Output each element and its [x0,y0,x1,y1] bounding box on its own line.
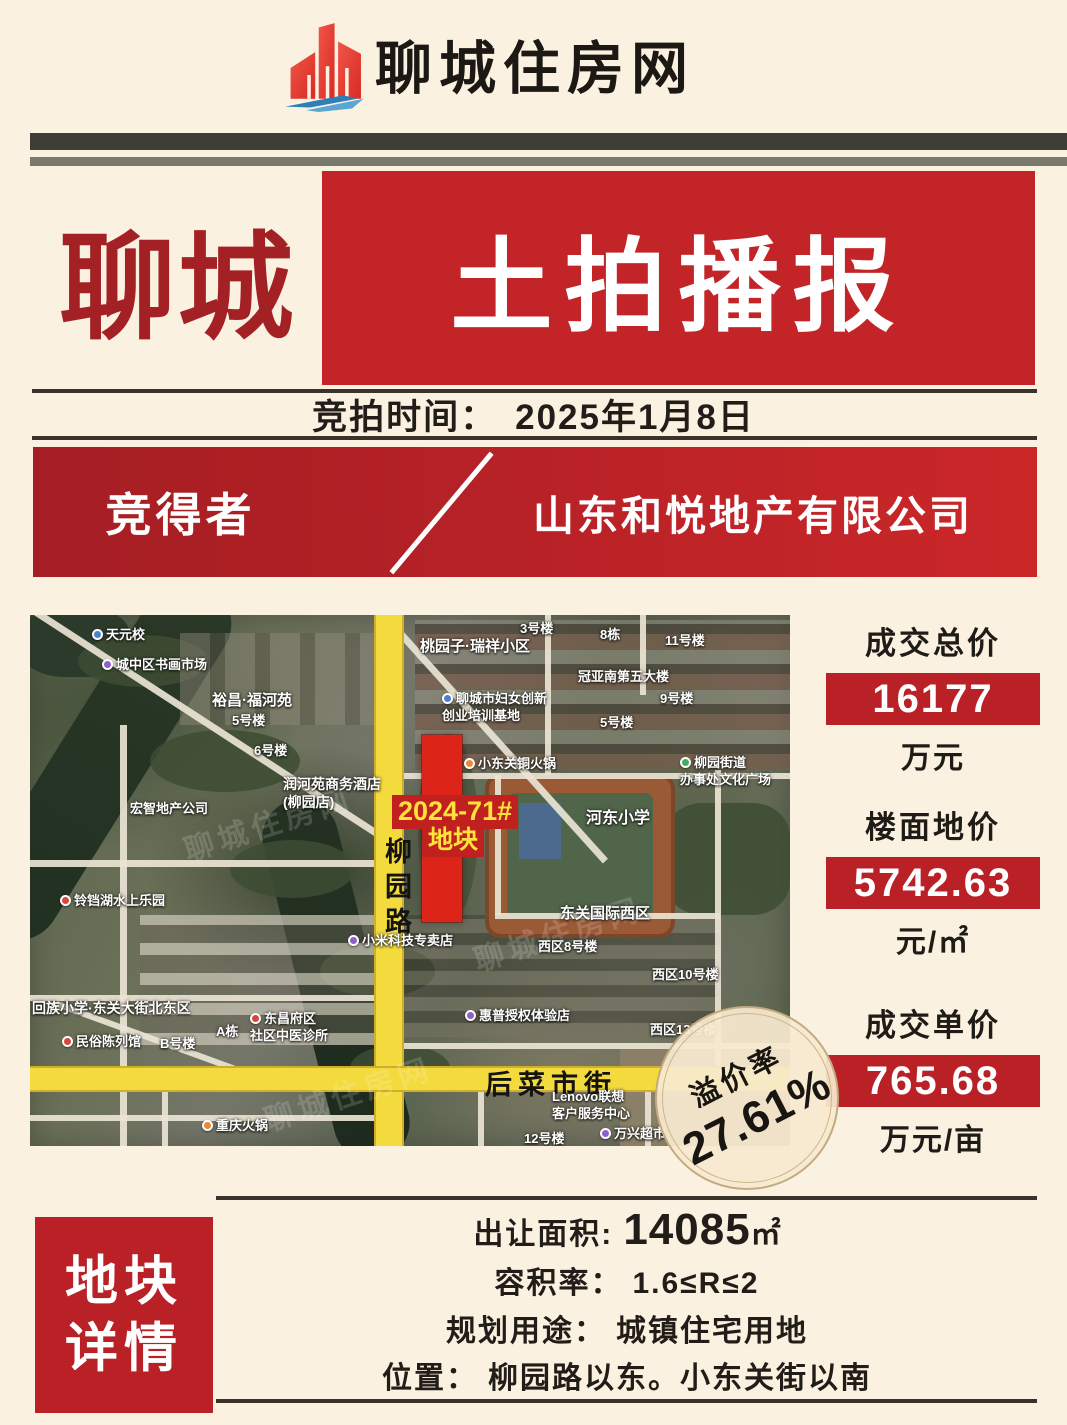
stat-unit: 万元 [826,733,1040,777]
map-pin-icon [62,1036,73,1047]
map-poi-text: A栋 [216,1024,238,1039]
map-poi-label: 9号楼 [660,691,693,708]
map-poi-label: 河东小学 [586,809,650,830]
road-name-vertical: 柳园路 [377,837,416,942]
title-banner: 土拍播报 [322,171,1035,385]
stat-label: 成交总价 [826,618,1040,663]
map-poi-text: 西区10号楼 [652,967,718,982]
map-poi-text: 小米科技专卖店 [362,933,453,948]
map-poi-label: 西区8号楼 [538,939,597,956]
rule-line [216,1196,1037,1200]
city-title: 聊城 [33,171,322,385]
map-poi-label: 8栋 [600,627,620,644]
detail-value: 14085 [623,1205,750,1255]
map-poi-label: 11号楼 [665,633,705,650]
map-poi-label: 小米科技专卖店 [348,933,453,950]
map-poi-text: 回族小学·东关大街北东区 [32,1000,191,1016]
map-poi-label: 6号楼 [254,743,287,760]
stat-value-box: 16177 [826,673,1040,725]
map-poi-text: 柳园街道 [694,755,746,770]
rule-line [32,436,1037,440]
map-poi-label: 宏智地产公司 [130,801,208,818]
rule-line [216,1399,1037,1403]
map-poi-label: 5号楼 [600,715,633,732]
stat-unit-price: 成交单价 765.68 万元/亩 [826,1000,1040,1159]
map-poi-text: 西区8号楼 [538,939,597,954]
map-poi-text: 3号楼 [520,621,553,636]
map-poi-label: 惠普授权体验店 [465,1008,570,1025]
map-poi-text: 冠亚南第五大楼 [578,669,669,684]
map-poi-label: 12号楼 [524,1131,564,1146]
auction-time-label: 竞拍时间： [312,389,497,440]
winner-company-name: 山东和悦地产有限公司 [498,447,1008,577]
plot-details-rows: 出让面积: 14085 ㎡ 容积率： 1.6≤R≤2 规划用途： 城镇住宅用地 … [217,1205,1037,1397]
map-poi-label: 民俗陈列馆 [62,1034,141,1051]
header: 聊城住房网 [0,0,1067,130]
winner-label: 竞得者 [88,447,273,577]
map-poi-text: 聊城市妇女创新 [456,691,547,706]
map-poi-text: 9号楼 [660,691,693,706]
detail-value: 城镇住宅用地 [616,1306,808,1350]
map-poi-label: 铃铛湖水上乐园 [60,893,165,910]
map-poi-text: 6号楼 [254,743,287,758]
detail-value: 1.6≤R≤2 [633,1267,760,1301]
map-poi-label: 聊城市妇女创新创业培训基地 [442,691,547,725]
premium-rate-badge: 溢价率 27.61% [655,1006,839,1190]
map-poi-label: 3号楼 [520,621,553,638]
map-poi-text-line2: 办事处文化广场 [680,772,771,789]
stat-value-box: 5742.63 [826,857,1040,909]
stat-label: 成交单价 [826,1000,1040,1045]
map-pin-icon [680,757,691,768]
stat-floor-price: 楼面地价 5742.63 元/㎡ [826,802,1040,961]
stat-value-box: 765.68 [826,1055,1040,1107]
map-pin-icon [202,1120,213,1131]
diagonal-divider [389,452,493,575]
land-auction-poster: 聊城住房网 聊城 土拍播报 竞拍时间： 2025年1月8日 竞得者 山东和悦地产… [0,0,1067,1425]
map-poi-label: 东关国际西区 [560,904,650,924]
map-poi-label: 城中区书画市场 [102,657,207,674]
map-poi-label: 裕昌·福河苑 [212,691,292,711]
map-poi-label: 小东关铜火锅 [464,756,556,773]
map-poi-text: 小东关铜火锅 [478,756,556,771]
detail-label: 位置： [382,1353,478,1397]
map-poi-text-line2: 创业培训基地 [442,708,547,725]
map-poi-text-line2: 社区中医诊所 [250,1028,328,1045]
map-poi-text: 5号楼 [600,715,633,730]
map-pin-icon [442,693,453,704]
map-poi-text: 河东小学 [586,810,650,827]
map-poi-text: 5号楼 [232,713,265,728]
detail-row-far: 容积率： 1.6≤R≤2 [217,1258,1037,1302]
stat-unit: 万元/亩 [826,1115,1040,1159]
map-pin-icon [60,895,71,906]
map-poi-label: 润河苑商务酒店(柳园店) [283,775,381,811]
stat-label: 楼面地价 [826,802,1040,847]
map-poi-label: 天元校 [92,627,145,644]
map-poi-text: 万兴超市 [614,1126,666,1141]
map-pin-icon [250,1013,261,1024]
map-poi-label: 回族小学·东关大街北东区 [32,999,191,1017]
map-pin-icon [600,1128,611,1139]
map-poi-label: 重庆火锅 [202,1118,268,1135]
map-poi-text: 8栋 [600,627,620,642]
plot-number-tag: 2024-71# [392,795,518,829]
map-poi-text: 润河苑商务酒店 [283,776,381,792]
detail-label: 容积率： [495,1258,623,1302]
auction-time-value: 2025年1月8日 [515,389,755,440]
housing-network-logo-icon [280,8,368,120]
map-poi-label: 5号楼 [232,713,265,730]
site-name: 聊城住房网 [375,0,695,128]
map-poi-text: 民俗陈列馆 [76,1034,141,1049]
map-pin-icon [92,629,103,640]
map-poi-text: 11号楼 [665,633,705,648]
stat-unit: 元/㎡ [826,917,1040,961]
map-poi-label: 西区10号楼 [652,967,718,984]
map-poi-label: 冠亚南第五大楼 [578,669,669,686]
panel-title-line2: 详情 [65,1322,183,1375]
panel-title-line1: 地块 [65,1255,183,1308]
auction-time-row: 竞拍时间： 2025年1月8日 [30,392,1037,436]
detail-row-area: 出让面积: 14085 ㎡ [217,1205,1037,1255]
map-poi-text: Lenovo联想 [552,1089,624,1104]
map-poi-label: B号楼 [160,1036,195,1053]
map-poi-label: 桃园子·瑞祥小区 [420,637,530,657]
plot-details-panel-title: 地块 详情 [35,1217,213,1413]
detail-value: 柳园路以东。小东关街以南 [488,1353,872,1397]
map-poi-text: 桃园子·瑞祥小区 [420,638,530,655]
detail-label: 规划用途： [446,1306,606,1350]
divider-bar-dark [30,133,1067,150]
map-poi-text: 铃铛湖水上乐园 [74,893,165,908]
detail-unit: ㎡ [751,1209,781,1253]
map-poi-text: 裕昌·福河苑 [212,692,292,709]
map-poi-text-line2: 客户服务中心 [552,1106,630,1123]
map-poi-text-line2: (柳园店) [283,793,381,811]
detail-row-use: 规划用途： 城镇住宅用地 [217,1306,1037,1350]
map-poi-text: 宏智地产公司 [130,801,208,816]
map-poi-text: B号楼 [160,1036,195,1051]
map-poi-text: 重庆火锅 [216,1118,268,1133]
map-pin-icon [464,758,475,769]
map-poi-text: 东关国际西区 [560,905,650,922]
detail-row-location: 位置： 柳园路以东。小东关街以南 [217,1353,1037,1397]
map-poi-text: 城中区书画市场 [116,657,207,672]
map-poi-label: A栋 [216,1024,238,1041]
plot-word-tag: 地块 [422,825,484,857]
map-poi-text: 天元校 [106,627,145,642]
map-pin-icon [102,659,113,670]
map-poi-label: 东昌府区社区中医诊所 [250,1011,328,1045]
map-poi-text: 东昌府区 [264,1011,316,1026]
map-trees [665,803,790,915]
map-poi-label: 柳园街道办事处文化广场 [680,755,771,789]
winner-banner: 竞得者 山东和悦地产有限公司 [33,447,1037,577]
stat-total-price: 成交总价 16177 万元 [826,618,1040,777]
map-building-cluster [180,633,400,725]
map-poi-label: 万兴超市 [600,1126,666,1143]
map-poi-text: 惠普授权体验店 [479,1008,570,1023]
map-poi-text: 12号楼 [524,1131,564,1146]
map-road [478,1092,484,1146]
title-banner-text: 土拍播报 [451,205,907,352]
map-pin-icon [348,935,359,946]
map-sports-court [519,803,561,859]
map-pin-icon [465,1010,476,1021]
divider-bar-olive [30,157,1067,166]
detail-label: 出让面积: [473,1209,613,1253]
map-poi-label: Lenovo联想客户服务中心 [552,1089,630,1123]
